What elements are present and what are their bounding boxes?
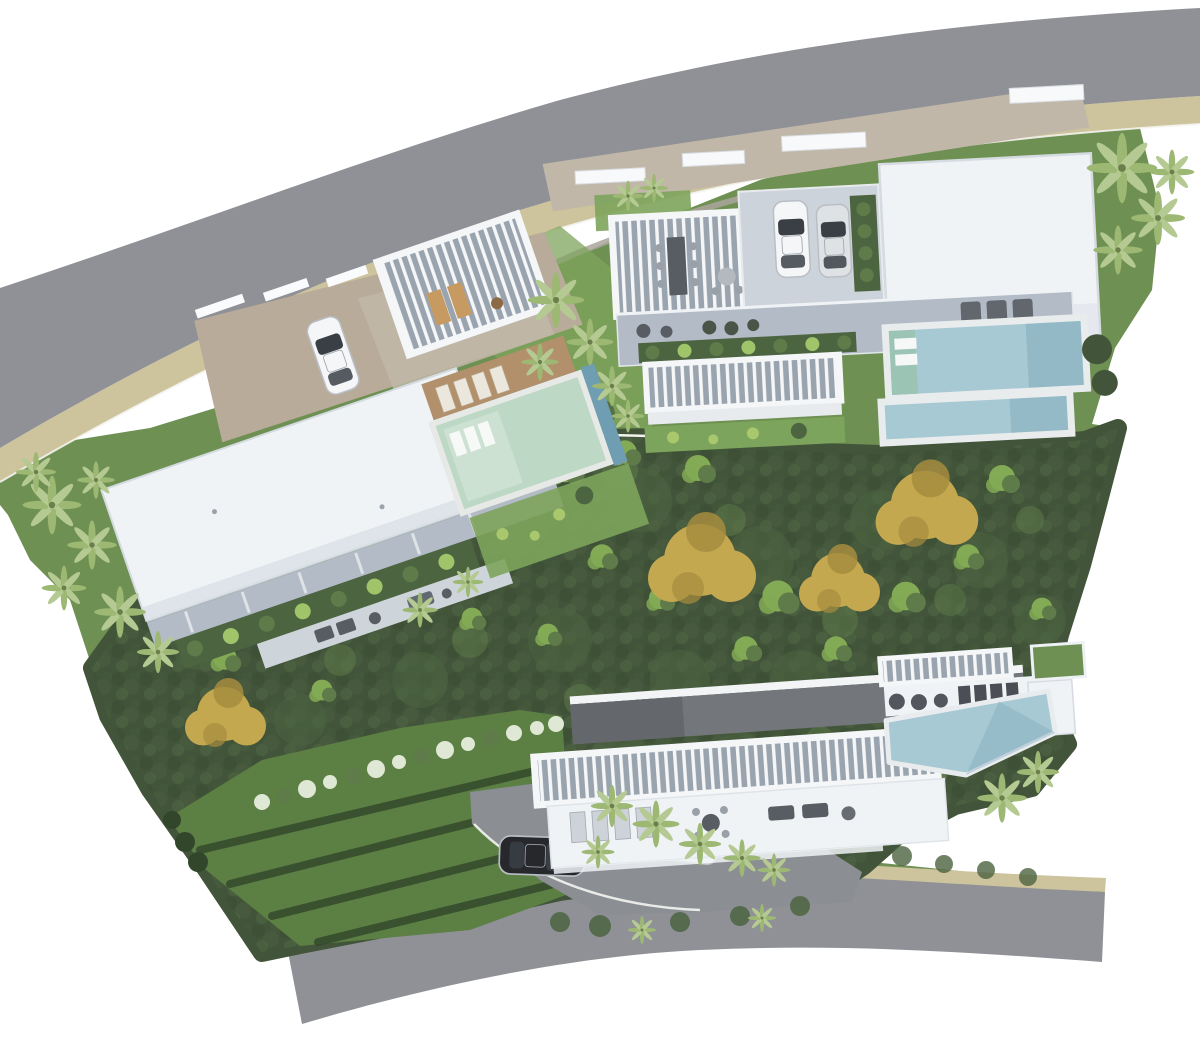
pool-lounger <box>894 338 917 350</box>
palm-tree <box>591 785 633 827</box>
palm-tree <box>612 400 645 433</box>
palm-tree <box>640 174 668 202</box>
villa-3-roof-drive <box>570 697 685 745</box>
palm-tree <box>67 520 116 569</box>
palm-tree <box>42 566 87 611</box>
palm-tree <box>582 836 615 869</box>
palm-tree <box>613 181 644 212</box>
sofa <box>802 803 829 819</box>
palm-tree <box>977 773 1026 822</box>
palm-tree <box>592 366 632 406</box>
pool-lounger <box>895 354 918 366</box>
palm-tree <box>567 319 614 366</box>
villa-2-lower-pergola <box>645 355 841 411</box>
villa-2-lower-pool <box>877 389 1075 447</box>
palm-tree <box>1087 133 1158 204</box>
palm-tree <box>758 854 791 887</box>
palm-tree <box>521 343 559 381</box>
palm-tree <box>16 452 56 492</box>
palm-tree <box>1131 191 1185 245</box>
palm-tree <box>77 461 115 499</box>
site-plan-canvas <box>0 0 1200 1038</box>
palm-tree <box>633 801 680 848</box>
car-silver-villa2 <box>816 204 852 278</box>
palm-tree <box>1150 150 1195 195</box>
dining-table <box>667 237 688 296</box>
palm-tree <box>1017 751 1059 793</box>
palm-tree <box>528 272 584 328</box>
palm-tree <box>628 916 656 944</box>
palm-tree <box>137 631 179 673</box>
palm-tree <box>723 839 761 877</box>
palm-tree <box>453 567 484 598</box>
palm-tree <box>94 586 146 638</box>
lounger <box>570 812 587 843</box>
palm-tree <box>679 823 721 865</box>
palm-tree <box>23 476 82 535</box>
villa-3-green-roof <box>1031 643 1085 681</box>
villa-2-green-strip <box>850 195 881 292</box>
sofa <box>768 805 795 821</box>
car-white-villa2 <box>773 200 811 278</box>
palm-tree <box>748 904 776 932</box>
site-plan-page <box>0 0 1200 1038</box>
palm-tree <box>402 592 437 627</box>
villa-2-upper-pool <box>881 314 1091 403</box>
palm-tree <box>1093 225 1142 274</box>
